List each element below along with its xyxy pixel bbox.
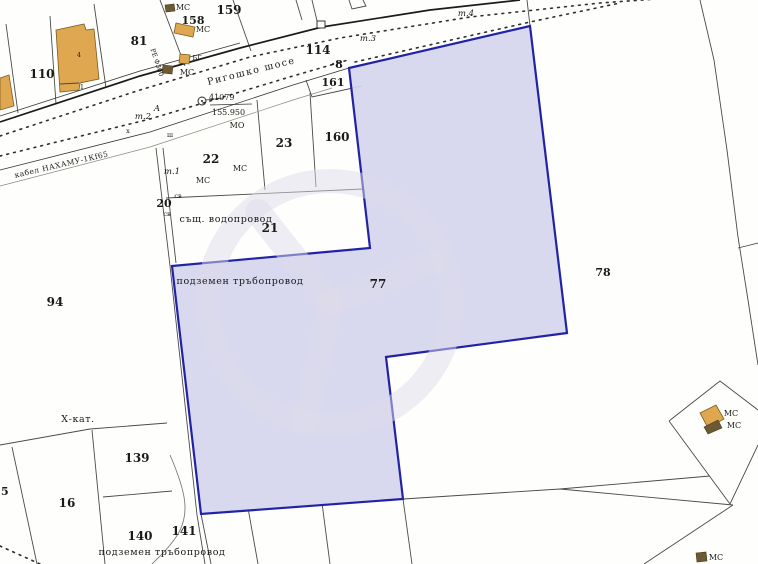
boundary-22-23 xyxy=(257,100,265,190)
label-sv-1: св xyxy=(174,192,182,200)
benchmark-elevation: 155.950 xyxy=(212,108,245,117)
parcel-label-114: 114 xyxy=(305,43,330,57)
road-lower-edge xyxy=(0,68,349,170)
boundary-110-right xyxy=(50,16,56,104)
building-strip-a xyxy=(165,4,175,12)
boundary-159-right xyxy=(296,0,302,20)
label-x-mark: х xyxy=(126,127,130,135)
cadastral-map-canvas: 1108115815911416116023222120947778139161… xyxy=(0,0,758,564)
label-ms-5: МС xyxy=(196,176,210,185)
building-110-sub-4: 4 xyxy=(77,51,81,59)
label-bg-mark: БГ xyxy=(192,54,202,62)
parcel-label-139: 139 xyxy=(124,451,149,465)
survey-point-t2: т.2 xyxy=(135,112,151,122)
label-ms-8: МС xyxy=(709,553,723,562)
label-mo: МО xyxy=(230,121,245,130)
point-label-8: ·8 xyxy=(331,58,343,71)
parcel-label-77: 77 xyxy=(370,277,387,291)
parcel-label-22: 22 xyxy=(203,152,220,166)
parcel-label-5: 5 xyxy=(1,485,9,498)
parcel-label-94: 94 xyxy=(47,295,64,309)
boundary-below-parcel-c xyxy=(403,499,412,564)
parcel-label-140: 140 xyxy=(127,529,152,543)
boundary-below-parcel-a xyxy=(248,508,258,564)
pipeline-note-upper: подземен тръбопровод xyxy=(177,276,304,287)
building-strip-c xyxy=(179,54,190,64)
label-ms-7: МС xyxy=(727,421,741,430)
parcel-label-110: 110 xyxy=(29,67,54,81)
boundary-east-long xyxy=(700,0,758,365)
survey-point-t4: т.4 xyxy=(458,9,474,19)
boundary-top-notch xyxy=(349,0,366,9)
label-ms-1: МС xyxy=(176,3,190,12)
label-a: А xyxy=(153,104,160,114)
road-name-label: Ригошко шосе xyxy=(206,55,296,88)
parcel-label-141: 141 xyxy=(171,524,196,538)
parcel-label-23: 23 xyxy=(276,136,293,150)
boundary-139-140 xyxy=(103,491,172,497)
parcel-label-159: 159 xyxy=(216,3,241,17)
parcel-label-16: 16 xyxy=(59,496,76,510)
boundary-southeast-long xyxy=(403,489,733,505)
benchmark-id: 41079 xyxy=(209,93,234,102)
category-note: Х-кат. xyxy=(61,414,94,425)
parcel-label-78: 78 xyxy=(595,266,611,279)
survey-point-t1: т.1 xyxy=(164,167,180,177)
label-ms-6: МС xyxy=(724,409,738,418)
boundary-east-branch xyxy=(738,243,758,248)
pipeline-note-lower: подземен тръбопровод xyxy=(99,547,226,558)
parcel-label-20: 20 xyxy=(156,197,172,210)
boundary-5-16 xyxy=(12,447,37,564)
label-sv-2: св xyxy=(163,210,171,218)
boundary-94-south xyxy=(0,423,167,445)
parcel-label-81: 81 xyxy=(131,34,148,48)
boundary-below-parcel-b xyxy=(322,503,330,564)
survey-point-t3: т.3 xyxy=(360,34,376,44)
cable-label: кабел НАХАМУ-1Кf65 xyxy=(14,149,110,179)
building-110-sub-1: 1 xyxy=(80,83,84,91)
building-corner-s xyxy=(696,552,707,562)
label-sh-mark: ш xyxy=(167,131,173,139)
boundary-southeast-branch xyxy=(560,476,710,489)
benchmark-underline xyxy=(210,104,252,105)
parcel-label-161: 161 xyxy=(322,76,345,89)
waterline-note: същ. водопровод xyxy=(180,214,273,225)
parcel-label-160: 160 xyxy=(324,130,349,144)
cadastral-map-view: { "map": { "highlight_color": "#d5d5ee",… xyxy=(0,0,758,564)
label-ms-2: МС xyxy=(196,25,210,34)
building-left-sliver xyxy=(0,75,14,110)
survey-marker-square xyxy=(317,21,325,28)
label-ms-3: МС xyxy=(180,68,194,77)
diamond-parcel-lower xyxy=(669,421,758,504)
benchmark-dot xyxy=(201,100,203,102)
label-ms-4: МС xyxy=(233,164,247,173)
